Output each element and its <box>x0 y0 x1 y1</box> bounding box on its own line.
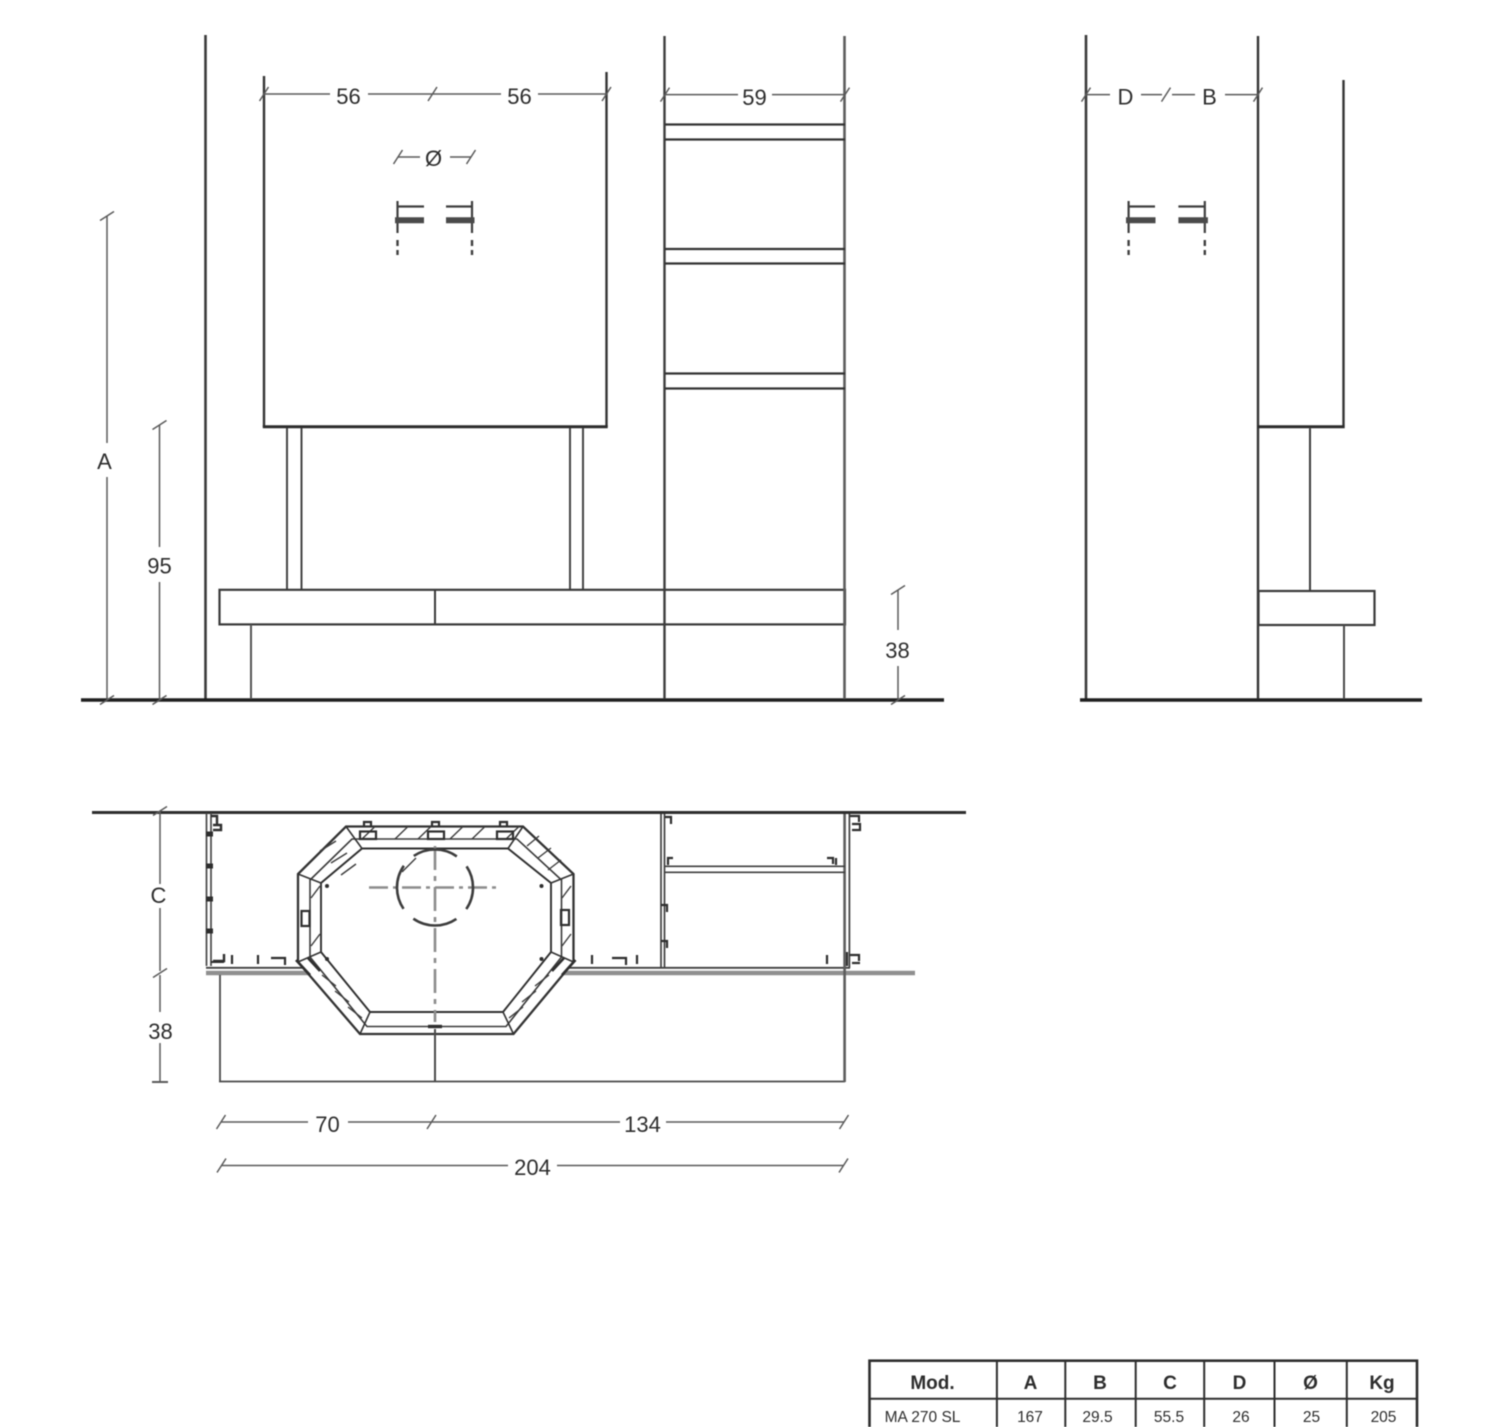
svg-text:95: 95 <box>147 554 171 579</box>
svg-text:55.5: 55.5 <box>1154 1409 1184 1426</box>
svg-text:B: B <box>1093 1373 1107 1394</box>
svg-text:205: 205 <box>1371 1409 1397 1426</box>
svg-text:38: 38 <box>885 638 909 663</box>
svg-text:26: 26 <box>1232 1409 1249 1426</box>
svg-text:70: 70 <box>315 1112 339 1137</box>
svg-text:A: A <box>97 449 112 474</box>
svg-text:B: B <box>1202 85 1217 110</box>
svg-text:C: C <box>1163 1373 1177 1394</box>
svg-text:Mod.: Mod. <box>910 1373 954 1394</box>
svg-text:D: D <box>1233 1373 1247 1394</box>
svg-text:29.5: 29.5 <box>1082 1409 1112 1426</box>
svg-text:134: 134 <box>624 1112 661 1137</box>
svg-text:MA 270 SL: MA 270 SL <box>885 1409 961 1426</box>
svg-text:204: 204 <box>514 1155 551 1180</box>
svg-text:56: 56 <box>336 84 360 109</box>
svg-text:Ø: Ø <box>425 146 442 171</box>
svg-text:25: 25 <box>1303 1409 1320 1426</box>
svg-text:Kg: Kg <box>1369 1373 1394 1394</box>
svg-text:Ø: Ø <box>1303 1373 1318 1394</box>
svg-text:167: 167 <box>1017 1409 1043 1426</box>
svg-text:56: 56 <box>507 84 531 109</box>
svg-text:59: 59 <box>742 85 766 110</box>
svg-text:A: A <box>1024 1373 1038 1394</box>
svg-text:C: C <box>151 883 167 908</box>
svg-text:D: D <box>1118 85 1134 110</box>
svg-text:38: 38 <box>148 1019 172 1044</box>
